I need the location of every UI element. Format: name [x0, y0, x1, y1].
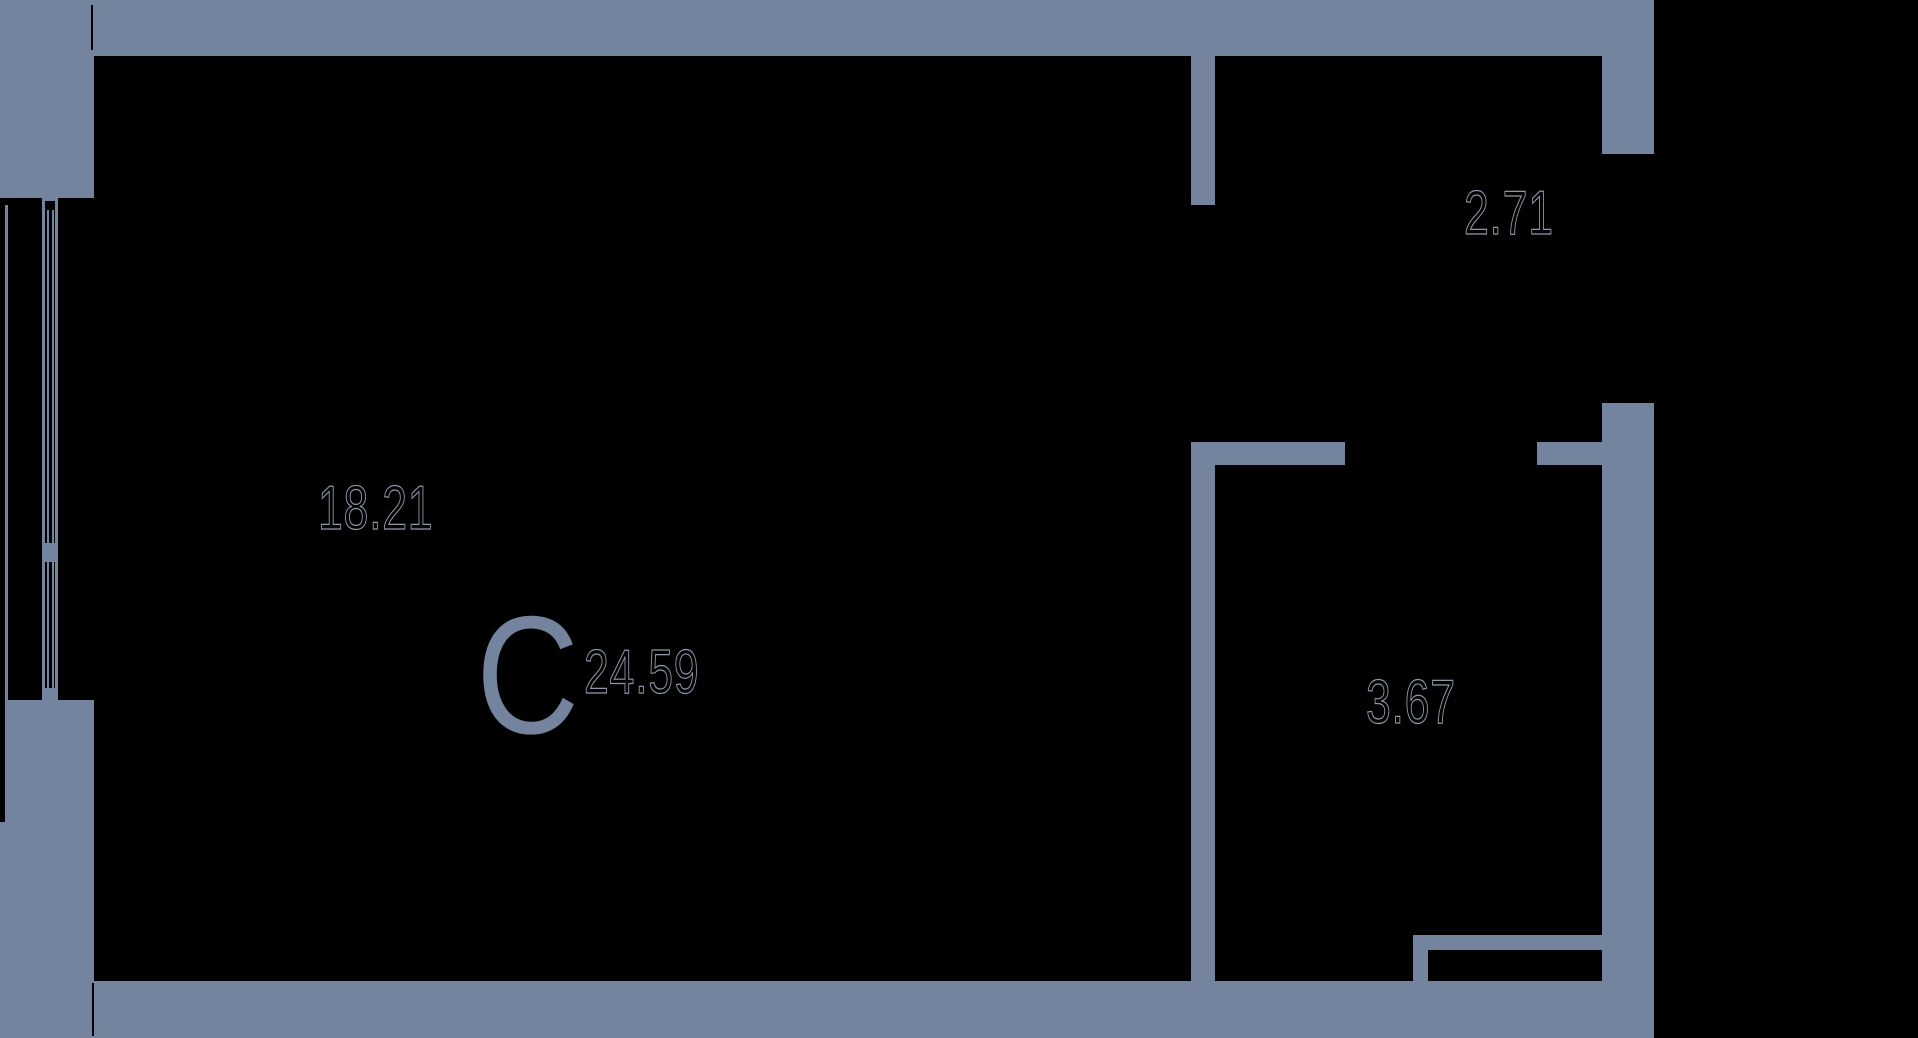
- wall-right-lower: [1602, 403, 1654, 1038]
- window-outer-face-line: [5, 205, 8, 700]
- window-mullion-middle: [42, 543, 58, 562]
- wall-bottom: [0, 981, 1654, 1038]
- total-area-label: 24.59: [584, 642, 699, 704]
- main-room-area-label: 18.21: [318, 478, 433, 540]
- wall-bathroom-top-right: [1537, 442, 1602, 465]
- wall-top: [0, 0, 1654, 56]
- wall-left-upper: [0, 0, 94, 198]
- window-mullion-lower: [42, 688, 58, 710]
- wall-partition-upper: [1191, 56, 1215, 205]
- bathroom-area-label: 3.67: [1366, 672, 1456, 734]
- duct-wall-horizontal: [1413, 935, 1607, 950]
- apartment-type-letter: С: [476, 591, 579, 759]
- wall-joint-line-top-left: [91, 5, 93, 50]
- wall-bathroom-top-left: [1191, 442, 1345, 465]
- hallway-area-label: 2.71: [1464, 183, 1554, 245]
- window-glass-line: [47, 210, 54, 692]
- floor-plan: 18.21 С 24.59 2.71 3.67: [0, 0, 1918, 1038]
- wall-right-upper: [1602, 0, 1654, 154]
- wall-left-lower-a: [5, 700, 94, 822]
- wall-joint-line-bottom-left: [92, 983, 94, 1036]
- duct-wall-vertical: [1413, 950, 1428, 981]
- wall-partition-lower: [1191, 442, 1215, 981]
